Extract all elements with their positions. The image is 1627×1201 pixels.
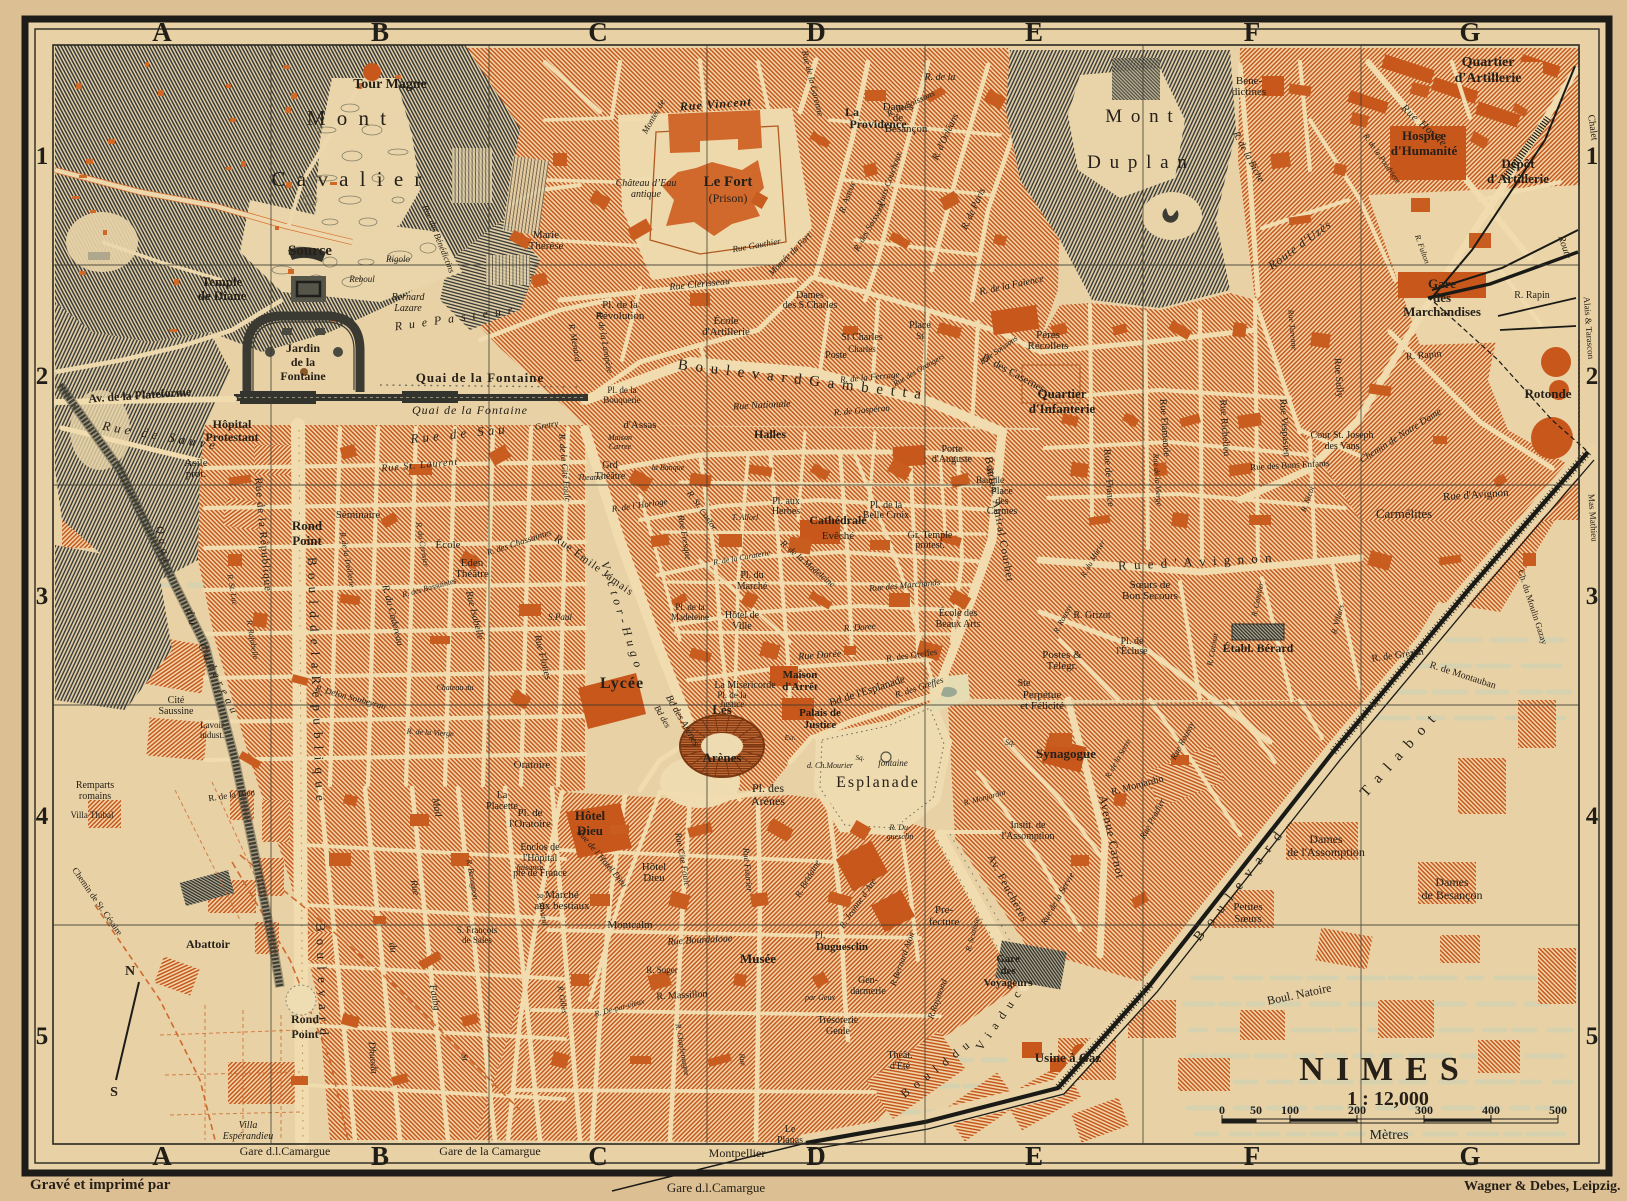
svg-text:fecture: fecture [929,916,960,928]
svg-text:Point: Point [292,533,322,548]
svg-text:d'Artillerie: d'Artillerie [702,326,750,338]
svg-text:Séminaire: Séminaire [336,509,381,521]
svg-text:D u p l a n: D u p l a n [1087,152,1189,173]
svg-text:Justice: Justice [720,699,745,709]
svg-text:Pl.: Pl. [815,930,826,941]
svg-text:S: S [110,1085,118,1100]
svg-text:1: 1 [36,143,49,170]
svg-text:Usine à Gaz: Usine à Gaz [1035,1050,1102,1065]
svg-text:Saussine: Saussine [159,706,195,717]
svg-text:Temple: Temple [202,274,243,289]
svg-text:Télégr.: Télégr. [1047,660,1078,672]
svg-text:D: D [806,17,826,47]
svg-text:Planas: Planas [777,1135,803,1146]
svg-text:0: 0 [1219,1103,1225,1117]
svg-text:Besançon: Besançon [885,123,928,135]
svg-text:Place: Place [909,320,931,331]
svg-text:C: C [588,17,608,47]
svg-text:E: E [1025,17,1043,47]
svg-text:A: A [152,17,172,47]
svg-text:de Diane: de Diane [198,288,247,303]
svg-text:Point: Point [291,1027,318,1041]
svg-text:(Prison): (Prison) [709,191,748,205]
svg-text:Halles: Halles [754,427,786,441]
svg-text:2: 2 [1586,363,1599,390]
svg-text:des Vans: des Vans [1324,441,1359,452]
svg-text:d'Infanterie: d'Infanterie [1029,401,1096,416]
svg-text:Duguesclin: Duguesclin [816,941,868,953]
svg-text:Wagner & Debes, Leipzig.: Wagner & Debes, Leipzig. [1464,1179,1620,1194]
svg-text:Esplanade: Esplanade [836,774,920,791]
svg-text:Lazare: Lazare [393,303,422,314]
svg-text:d'Humanité: d'Humanité [1391,143,1458,158]
svg-text:100: 100 [1281,1103,1299,1117]
svg-text:fontaine: fontaine [878,758,908,768]
svg-text:Marchandises: Marchandises [1403,304,1481,319]
svg-text:Maison: Maison [607,433,632,442]
svg-text:de la: de la [291,355,315,369]
svg-text:Rigolo: Rigolo [385,254,410,264]
svg-text:Abattoir: Abattoir [186,937,231,951]
svg-text:Evêché: Evêché [822,530,854,542]
svg-text:5: 5 [36,1023,49,1050]
svg-text:S.Paul: S.Paul [548,612,572,622]
svg-text:300: 300 [1415,1103,1433,1117]
svg-text:500: 500 [1549,1103,1567,1117]
svg-text:prot.: prot. [186,468,207,480]
svg-text:Château d’Eau: Château d’Eau [616,178,677,189]
svg-text:Herbes: Herbes [772,506,800,517]
svg-text:Lavoir: Lavoir [200,720,224,730]
svg-text:R. Grizot: R. Grizot [1073,610,1110,621]
svg-text:Genle: Genle [826,1026,850,1037]
svg-text:Bouquerie: Bouquerie [603,395,641,405]
svg-text:Rotonde: Rotonde [1525,386,1572,401]
svg-text:M o n t: M o n t [307,106,389,130]
svg-text:de Sales: de Sales [462,935,492,945]
svg-text:Mètres: Mètres [1370,1128,1409,1143]
svg-text:par Geux: par Geux [804,993,835,1002]
svg-text:la Banque: la Banque [652,463,685,472]
svg-text:Reboul: Reboul [348,274,375,284]
svg-text:d'Auguste: d'Auguste [932,454,973,465]
svg-text:romains: romains [79,791,111,802]
svg-text:Espérandieu: Espérandieu [222,1131,274,1142]
svg-text:Cité: Cité [168,695,185,706]
svg-text:Protestant: Protestant [205,430,258,444]
svg-text:d. Ch.Mourier: d. Ch.Mourier [807,761,854,770]
svg-text:des S.Charles: des S.Charles [783,300,838,311]
svg-text:d'Arrêt: d'Arrêt [782,681,818,693]
svg-text:de Besançon: de Besançon [1422,888,1483,902]
svg-text:Chateau du: Chateau du [436,683,473,692]
svg-text:F: F [1244,17,1261,47]
svg-text:Voyageurs: Voyageurs [983,977,1033,989]
svg-text:G: G [1459,17,1480,47]
svg-text:Jardin: Jardin [286,341,320,355]
svg-text:l'Oratoire: l'Oratoire [509,818,551,830]
svg-text:Bernard: Bernard [392,292,426,303]
svg-text:E: E [1025,1141,1043,1171]
svg-text:Justice: Justice [804,719,837,731]
svg-text:Sq.: Sq. [1005,738,1015,747]
svg-text:Gare: Gare [1428,276,1456,291]
svg-text:d'Artillerie: d'Artillerie [1487,171,1549,186]
svg-text:École: École [435,539,460,551]
svg-text:d'Assas: d'Assas [623,419,656,431]
svg-text:dictines: dictines [1232,86,1266,98]
svg-text:4: 4 [36,803,49,830]
svg-text:Gen-: Gen- [858,975,878,986]
svg-text:Thérèse: Thérèse [529,240,564,252]
svg-text:l'Assomption: l'Assomption [1002,831,1055,842]
svg-text:Montcalm: Montcalm [607,919,653,931]
svg-text:protest.: protest. [915,540,945,551]
svg-text:Villa: Villa [239,1120,258,1131]
svg-text:N: N [125,964,135,979]
svg-text:Rond: Rond [292,518,323,533]
svg-text:des: des [1000,965,1016,977]
svg-text:Theatre: Theatre [578,473,603,482]
svg-text:Maison: Maison [783,669,818,681]
svg-text:Source: Source [288,243,332,259]
svg-text:D: D [806,1141,826,1171]
svg-text:Récollets: Récollets [1028,340,1069,352]
svg-text:guesclin: guesclin [887,832,914,841]
svg-text:Gare d.l.Camargue: Gare d.l.Camargue [240,1144,331,1158]
svg-text:3: 3 [1586,583,1599,610]
svg-text:de l'Assomption: de l'Assomption [1287,845,1365,859]
svg-text:Grd: Grd [602,460,618,471]
svg-text:1: 1 [1586,143,1599,170]
svg-text:Hôpital: Hôpital [213,417,252,431]
svg-text:faisance: faisance [517,863,544,872]
svg-text:Théâtre: Théâtre [455,568,489,580]
svg-text:M o n t: M o n t [1105,106,1174,127]
svg-text:50: 50 [1250,1103,1262,1117]
svg-text:G: G [1459,1141,1480,1171]
svg-text:Le: Le [785,1124,796,1135]
svg-text:Beaux Arts: Beaux Arts [936,619,981,630]
svg-text:Rond: Rond [291,1012,319,1026]
svg-text:Gravé et imprimé par: Gravé et imprimé par [30,1177,171,1193]
svg-text:Fontaine: Fontaine [280,369,326,383]
svg-text:Palais de: Palais de [799,707,841,719]
svg-text:Pl. de la: Pl. de la [675,602,704,612]
svg-text:Carree: Carree [609,442,632,451]
svg-text:2: 2 [36,363,49,390]
svg-text:Enclos de: Enclos de [520,842,560,853]
svg-text:400: 400 [1482,1103,1500,1117]
svg-text:d'Été: d'Été [890,1060,911,1072]
svg-text:Villa Thibal: Villa Thibal [70,810,114,820]
svg-text:Hôtel de: Hôtel de [725,610,760,621]
svg-text:Cour St. Joseph: Cour St. Joseph [1310,430,1373,441]
svg-text:Trésorerie: Trésorerie [818,1015,859,1026]
svg-text:St Charles: St Charles [841,332,882,343]
svg-text:A: A [152,1141,172,1171]
svg-text:Sq.: Sq. [856,754,865,762]
svg-text:5: 5 [1586,1023,1599,1050]
svg-text:Petites: Petites [1233,901,1262,913]
svg-text:S. François: S. François [457,925,498,935]
svg-text:T. Allorl: T. Allorl [732,513,759,522]
svg-text:darmerie: darmerie [850,986,886,997]
svg-text:St: St [916,331,924,341]
svg-text:École des: École des [939,607,978,619]
svg-text:Pl. des: Pl. des [752,781,784,795]
svg-text:Tour Magne: Tour Magne [353,77,427,92]
svg-text:Marché: Marché [737,581,768,592]
svg-text:Quai de la Fontaine: Quai de la Fontaine [416,370,544,385]
svg-text:l'Écluse: l'Écluse [1116,645,1148,657]
svg-text:Gare d.l.Camargue: Gare d.l.Camargue [667,1180,766,1195]
svg-text:F: F [1244,1141,1261,1171]
svg-text:Hôtel: Hôtel [575,808,606,823]
svg-text:4: 4 [1586,803,1599,830]
svg-text:Synagogue: Synagogue [1036,746,1096,761]
svg-text:Sœurs: Sœurs [1234,913,1262,925]
svg-text:Pl. de la: Pl. de la [607,385,636,395]
svg-text:Instit. de: Instit. de [1011,820,1047,831]
svg-text:Charles: Charles [848,344,876,354]
svg-text:Remparts: Remparts [76,780,114,791]
svg-text:Théât.: Théât. [887,1050,912,1061]
svg-text:Gare de la Camargue: Gare de la Camargue [439,1144,540,1158]
svg-text:Quai de la Fontaine: Quai de la Fontaine [412,403,528,417]
svg-text:La: La [497,790,508,801]
svg-text:Établ. Bérard: Établ. Bérard [1223,641,1294,655]
svg-text:Bon Secours: Bon Secours [1122,590,1178,602]
svg-text:Cathédrale: Cathédrale [809,513,867,527]
svg-text:Ste: Ste [1018,678,1031,689]
svg-text:Esr.: Esr. [784,734,796,742]
svg-text:Dames: Dames [1435,875,1469,889]
svg-text:R. Rapin: R. Rapin [1514,290,1550,301]
svg-text:Oratoire: Oratoire [514,759,551,771]
svg-text:Arènes: Arènes [703,750,742,765]
svg-text:Gare: Gare [996,953,1020,965]
svg-text:Lycée: Lycée [600,675,644,692]
svg-text:Belle Croix: Belle Croix [863,510,909,521]
svg-text:B: B [371,17,389,47]
svg-text:Placette: Placette [486,801,518,812]
svg-text:3: 3 [36,583,49,610]
svg-text:Dames: Dames [1309,832,1343,846]
svg-text:Pl. du: Pl. du [740,570,763,581]
svg-text:Montpellier: Montpellier [709,1146,766,1160]
svg-text:R. de la: R. de la [924,72,956,83]
svg-text:Madeleine: Madeleine [671,612,709,622]
svg-text:et Félicité: et Félicité [1020,700,1064,712]
svg-text:R. Du-: R. Du- [888,823,911,832]
svg-text:C a v a l i e r: C a v a l i e r [272,167,425,191]
svg-text:du: du [386,942,399,954]
svg-text:indust.: indust. [200,730,224,740]
svg-text:Pre-: Pre- [935,904,954,916]
svg-text:Le Fort: Le Fort [704,174,753,190]
svg-text:antique: antique [631,189,662,200]
svg-text:R. Suger: R. Suger [646,965,678,975]
svg-text:NIMES: NIMES [1299,1051,1470,1088]
svg-text:Ville: Ville [732,621,752,632]
svg-text:Dépôt: Dépôt [1501,156,1535,171]
svg-text:Dieu: Dieu [643,872,665,884]
svg-text:Quartier: Quartier [1462,55,1515,70]
svg-text:B: B [371,1141,389,1171]
svg-text:Poste: Poste [825,350,847,361]
svg-text:C: C [588,1141,608,1171]
svg-text:200: 200 [1348,1103,1366,1117]
svg-text:Musée: Musée [740,951,776,966]
svg-text:Carmélites: Carmélites [1376,506,1432,521]
svg-text:des: des [1433,290,1451,305]
svg-text:Arènes: Arènes [751,794,785,808]
svg-text:d'Artillerie: d'Artillerie [1455,71,1522,86]
